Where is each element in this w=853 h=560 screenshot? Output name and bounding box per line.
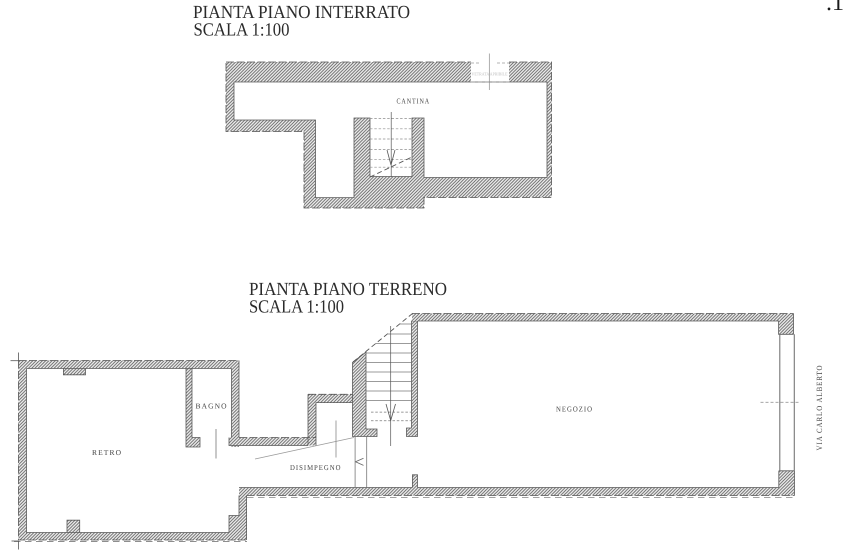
svg-text:SCALA 1:100: SCALA 1:100 [249, 298, 344, 318]
svg-text:NEGOZIO: NEGOZIO [556, 405, 593, 414]
svg-text:CANTINA: CANTINA [397, 97, 431, 106]
svg-text:.1: .1 [826, 0, 844, 16]
svg-text:BAGNO: BAGNO [196, 402, 228, 411]
svg-text:RETRO: RETRO [92, 448, 122, 457]
svg-text:SCALA 1:100: SCALA 1:100 [194, 21, 290, 41]
svg-text:VETRATA APRIBILE: VETRATA APRIBILE [472, 72, 508, 77]
svg-text:DISIMPEGNO: DISIMPEGNO [290, 463, 342, 472]
svg-text:VIA CARLO ALBERTO: VIA CARLO ALBERTO [815, 365, 824, 451]
